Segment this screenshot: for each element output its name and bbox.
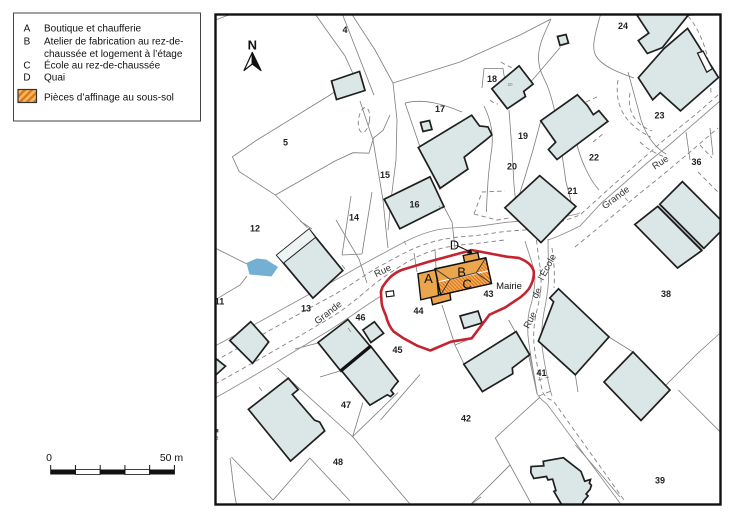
svg-text:Rue: Rue (522, 310, 540, 331)
svg-text:21: 21 (567, 186, 577, 196)
svg-text:A: A (24, 24, 31, 35)
svg-text:Pièces d’affinage au sous-sol: Pièces d’affinage au sous-sol (44, 93, 174, 104)
svg-text:13: 13 (301, 304, 311, 314)
svg-text:Boutique et chaufferie: Boutique et chaufferie (44, 24, 142, 35)
svg-text:Quai: Quai (44, 73, 65, 84)
svg-text:Mairie: Mairie (496, 281, 522, 292)
svg-text:23: 23 (654, 111, 664, 121)
svg-text:5: 5 (283, 138, 288, 148)
svg-text:Rue: Rue (650, 154, 671, 173)
svg-text:chaussée et logement à l’étage: chaussée et logement à l’étage (44, 49, 183, 60)
svg-text:C: C (23, 61, 30, 72)
svg-text:22: 22 (589, 153, 599, 163)
svg-text:47: 47 (341, 400, 351, 410)
svg-text:50 m: 50 m (160, 452, 184, 464)
svg-text:19: 19 (518, 131, 528, 141)
svg-text:48: 48 (333, 457, 343, 467)
svg-text:20: 20 (507, 162, 517, 172)
svg-text:Grande: Grande (600, 184, 632, 212)
svg-text:N: N (248, 38, 257, 53)
svg-text:0: 0 (46, 452, 52, 464)
svg-text:44: 44 (413, 306, 423, 316)
svg-text:15: 15 (380, 170, 390, 180)
svg-text:45: 45 (392, 345, 402, 355)
svg-text:D: D (23, 73, 30, 84)
svg-text:12: 12 (250, 224, 260, 234)
svg-text:38: 38 (661, 289, 671, 299)
svg-text:39: 39 (655, 476, 665, 486)
svg-text:D: D (450, 238, 459, 253)
svg-text:41: 41 (536, 368, 546, 378)
svg-text:4: 4 (342, 25, 347, 35)
svg-text:Grande: Grande (313, 299, 345, 327)
svg-text:16: 16 (409, 200, 419, 210)
svg-text:A: A (424, 271, 433, 286)
svg-text:l’École: l’École (536, 252, 559, 282)
svg-text:42: 42 (461, 414, 471, 424)
svg-text:36: 36 (691, 157, 701, 167)
svg-text:14: 14 (349, 213, 359, 223)
svg-text:18: 18 (487, 74, 497, 84)
svg-text:B: B (24, 37, 31, 48)
svg-text:C: C (462, 277, 471, 292)
svg-text:43: 43 (483, 289, 493, 299)
svg-text:46: 46 (355, 313, 365, 323)
svg-text:Atelier de fabrication au rez-: Atelier de fabrication au rez-de- (44, 37, 184, 48)
svg-text:24: 24 (618, 21, 628, 31)
svg-text:20: 20 (507, 82, 513, 87)
svg-text:17: 17 (435, 104, 445, 114)
svg-text:École au rez-de-chaussée: École au rez-de-chaussée (44, 59, 161, 72)
